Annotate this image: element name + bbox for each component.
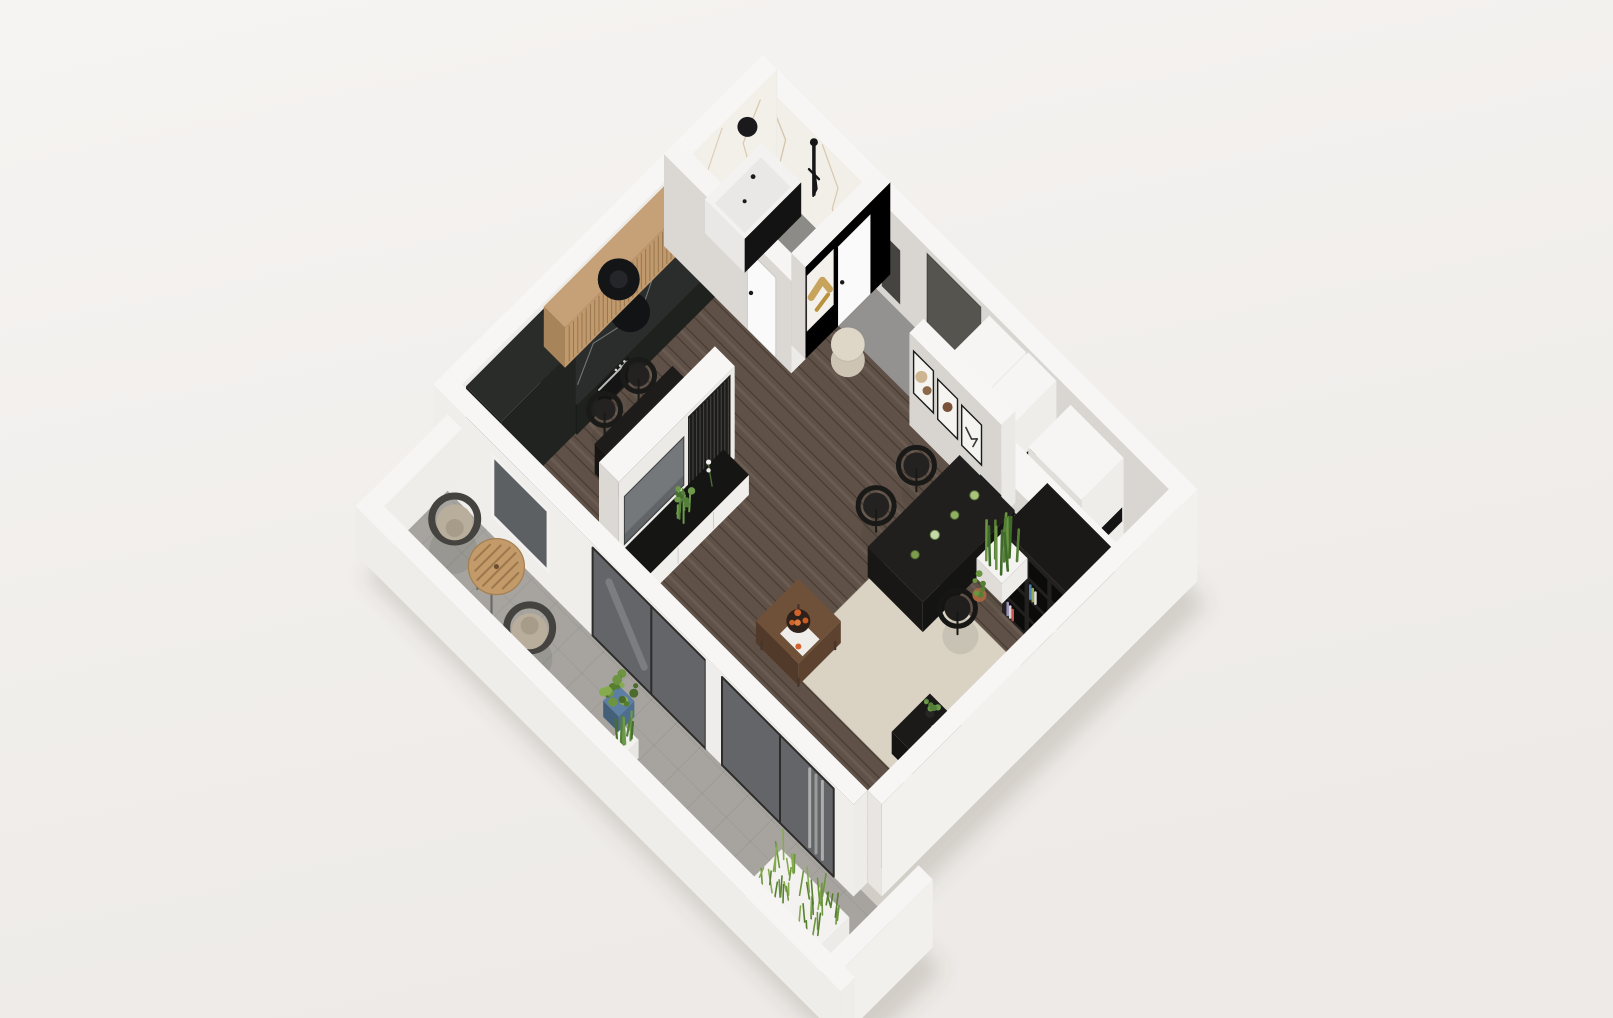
orchid-bloom-2	[706, 468, 710, 472]
shower-rain-disc	[737, 117, 757, 137]
picture-frame-1-art-b	[923, 386, 932, 395]
oven-knob-3	[615, 369, 618, 372]
orange-2	[794, 619, 800, 625]
oven-knob-1	[623, 360, 626, 363]
bathtub-faucet-dot	[751, 174, 756, 179]
balcony-table-center	[494, 564, 499, 569]
shower-head-top	[810, 138, 818, 146]
orange-4	[789, 620, 795, 626]
dining-cup-3	[930, 530, 939, 539]
balcony-chair-2-seatline	[521, 617, 539, 635]
bathroom-door-b-handle	[840, 280, 844, 284]
range-hood-inner	[610, 270, 628, 288]
orange-stray	[795, 643, 801, 649]
orange-1	[794, 609, 801, 616]
picture-frame-2-art	[943, 402, 953, 412]
hall-pouf-top	[831, 327, 865, 361]
oven-knob-2	[619, 364, 622, 367]
picture-frame-1-art	[915, 371, 927, 383]
apartment-floor-plan-stage	[0, 0, 1613, 1018]
balcony-chair-1-seatline	[446, 519, 464, 537]
dining-cup-4	[911, 550, 919, 558]
orchid-bloom-1	[706, 459, 711, 464]
dining-cup-1	[970, 491, 979, 500]
bathroom-door-a-handle	[749, 291, 753, 295]
bathtub-drain-dot	[743, 199, 747, 203]
dining-cup-2	[950, 511, 958, 519]
orange-3	[802, 617, 808, 623]
apartment-isometric-render	[0, 0, 1613, 1018]
sliding-door-mullion	[706, 657, 722, 765]
